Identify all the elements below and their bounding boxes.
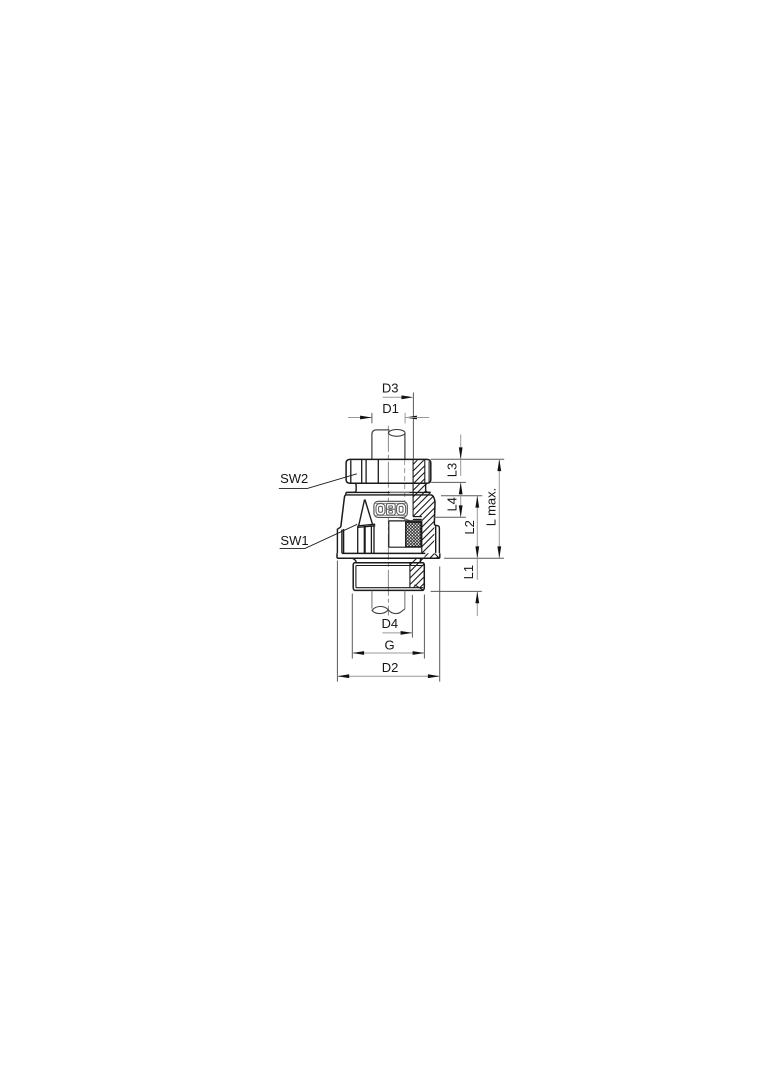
svg-text:L1: L1 — [461, 565, 476, 579]
svg-text:L max.: L max. — [484, 488, 499, 527]
svg-text:L4: L4 — [444, 497, 459, 511]
svg-text:D4: D4 — [381, 616, 398, 631]
svg-text:L2: L2 — [462, 520, 477, 534]
svg-text:G: G — [384, 637, 394, 652]
svg-text:D2: D2 — [382, 660, 399, 675]
svg-text:SW2: SW2 — [280, 471, 308, 486]
svg-text:D3: D3 — [382, 380, 399, 395]
svg-text:SW1: SW1 — [280, 533, 308, 548]
svg-text:D1: D1 — [382, 401, 399, 416]
svg-text:L3: L3 — [444, 463, 459, 477]
